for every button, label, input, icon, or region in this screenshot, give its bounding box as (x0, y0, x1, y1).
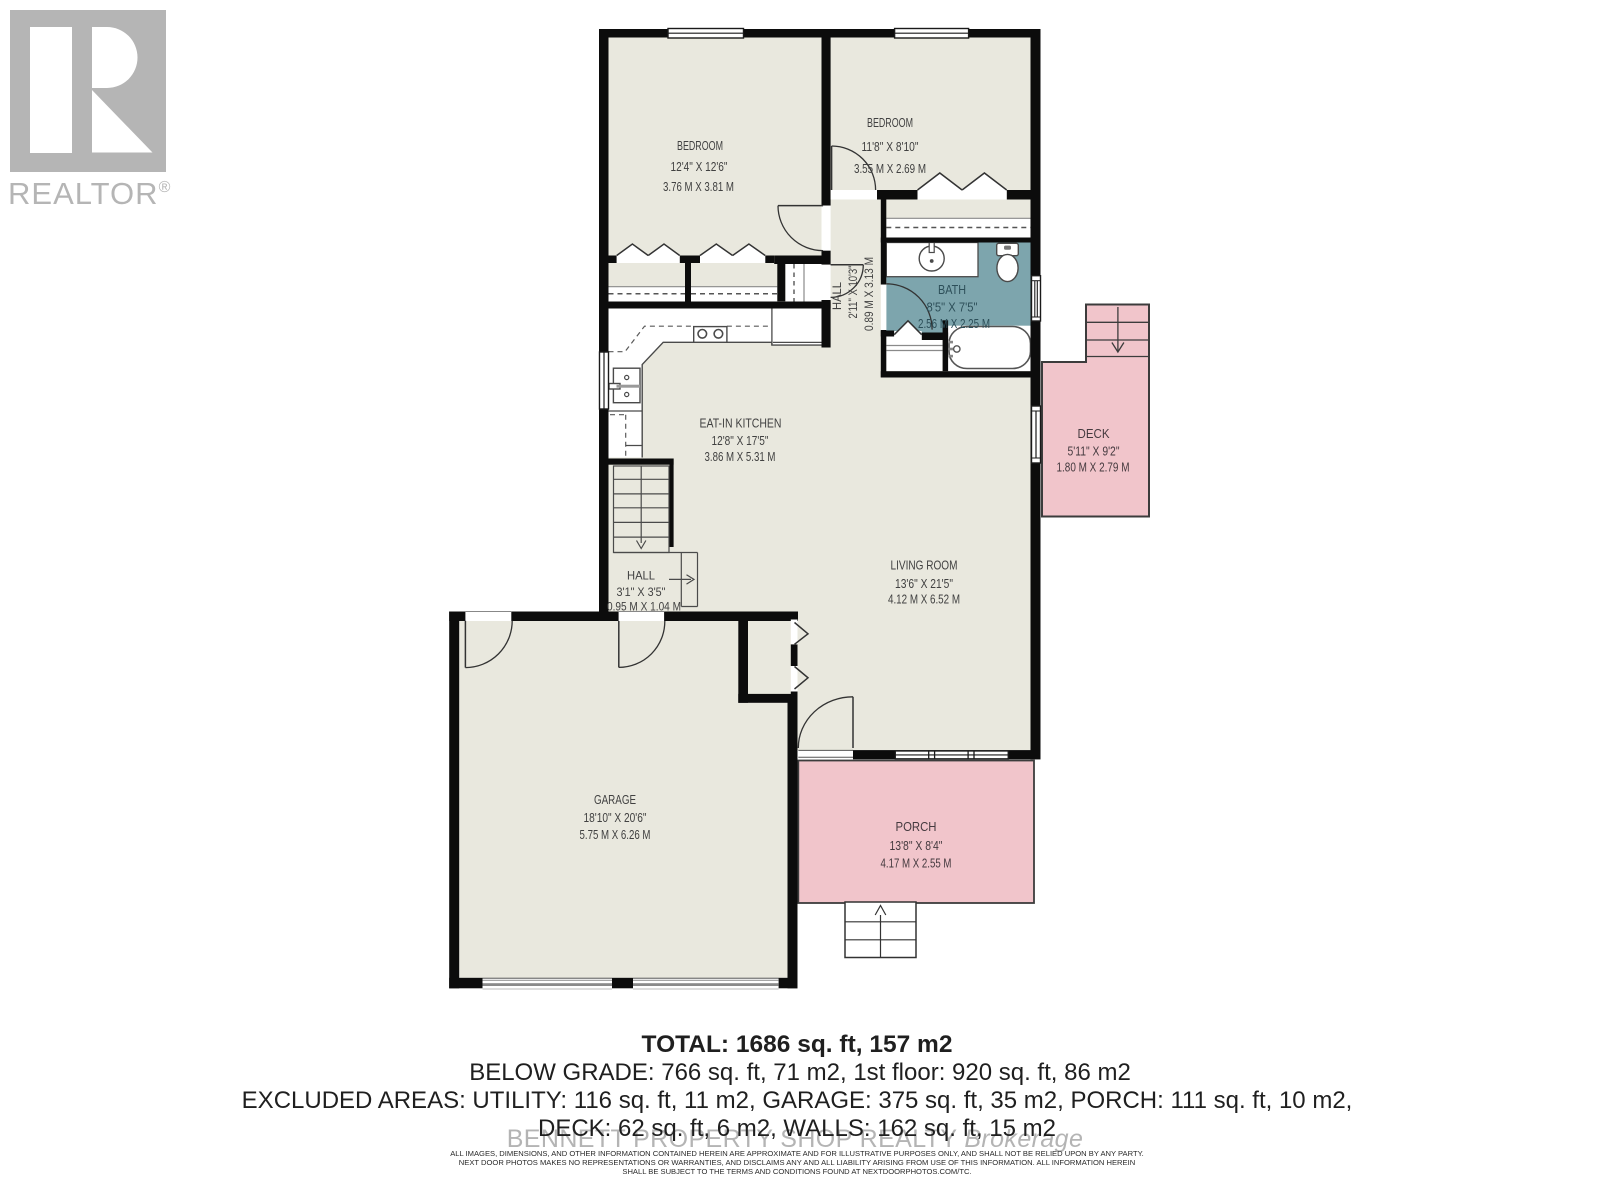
svg-text:TOTAL: 1686 sq. ft, 157 m2: TOTAL: 1686 sq. ft, 157 m2 (642, 1031, 953, 1058)
svg-text:2.56 M X 2.25 M: 2.56 M X 2.25 M (918, 317, 990, 331)
svg-text:3.86 M X 5.31 M: 3.86 M X 5.31 M (705, 450, 776, 464)
svg-text:NEXT DOOR PHOTOS MAKES NO REPR: NEXT DOOR PHOTOS MAKES NO REPRESENTATION… (459, 1158, 1135, 1167)
svg-text:3.55 M X 2.69 M: 3.55 M X 2.69 M (854, 162, 926, 176)
svg-text:3'1" X 3'5": 3'1" X 3'5" (617, 585, 666, 599)
svg-text:HALL: HALL (627, 569, 655, 583)
svg-text:5.75 M X 6.26 M: 5.75 M X 6.26 M (580, 828, 651, 842)
svg-text:0.89 M X 3.13 M: 0.89 M X 3.13 M (862, 257, 876, 331)
svg-text:8'5" X 7'5": 8'5" X 7'5" (927, 301, 978, 315)
svg-text:12'4" X 12'6": 12'4" X 12'6" (671, 160, 728, 174)
svg-text:PORCH: PORCH (896, 819, 937, 834)
svg-text:EXCLUDED AREAS: UTILITY: 116 s: EXCLUDED AREAS: UTILITY: 116 sq. ft, 11 … (242, 1087, 1353, 1114)
svg-text:HALL: HALL (830, 282, 844, 310)
svg-text:5'11" X 9'2": 5'11" X 9'2" (1068, 445, 1120, 459)
svg-text:12'8" X 17'5": 12'8" X 17'5" (712, 434, 769, 448)
svg-text:3.76 M X 3.81 M: 3.76 M X 3.81 M (663, 180, 734, 194)
svg-text:REALTOR®: REALTOR® (8, 176, 171, 211)
svg-text:BEDROOM: BEDROOM (867, 115, 913, 130)
svg-text:LIVING ROOM: LIVING ROOM (891, 558, 958, 573)
svg-text:4.12 M X 6.52 M: 4.12 M X 6.52 M (888, 593, 960, 607)
svg-text:0.95 M X 1.04 M: 0.95 M X 1.04 M (607, 600, 681, 614)
svg-text:EAT-IN KITCHEN: EAT-IN KITCHEN (700, 416, 782, 431)
svg-text:2'11" X 10'3": 2'11" X 10'3" (846, 266, 860, 319)
svg-text:11'8" X 8'10": 11'8" X 8'10" (862, 140, 919, 154)
svg-text:DECK: DECK (1078, 426, 1110, 441)
svg-text:BELOW GRADE: 766 sq. ft, 71 m2: BELOW GRADE: 766 sq. ft, 71 m2, 1st floo… (469, 1059, 1131, 1086)
svg-text:4.17 M X 2.55 M: 4.17 M X 2.55 M (881, 857, 952, 871)
svg-text:13'6" X 21'5": 13'6" X 21'5" (895, 577, 953, 591)
svg-text:13'8" X 8'4": 13'8" X 8'4" (890, 839, 943, 853)
svg-text:GARAGE: GARAGE (594, 792, 636, 807)
svg-text:BEDROOM: BEDROOM (677, 138, 723, 153)
svg-text:SHALL BE SUBJECT TO THE TERMS: SHALL BE SUBJECT TO THE TERMS AND CONDIT… (622, 1167, 971, 1176)
svg-text:DECK: 62 sq. ft, 6 m2, WALLS:: DECK: 62 sq. ft, 6 m2, WALLS: 162 sq. ft… (538, 1115, 1056, 1142)
svg-text:BATH: BATH (938, 282, 966, 297)
svg-text:1.80 M X 2.79 M: 1.80 M X 2.79 M (1057, 461, 1130, 475)
svg-text:ALL IMAGES, DIMENSIONS, AND OT: ALL IMAGES, DIMENSIONS, AND OTHER INFORM… (450, 1149, 1144, 1158)
svg-text:18'10" X 20'6": 18'10" X 20'6" (584, 811, 647, 825)
